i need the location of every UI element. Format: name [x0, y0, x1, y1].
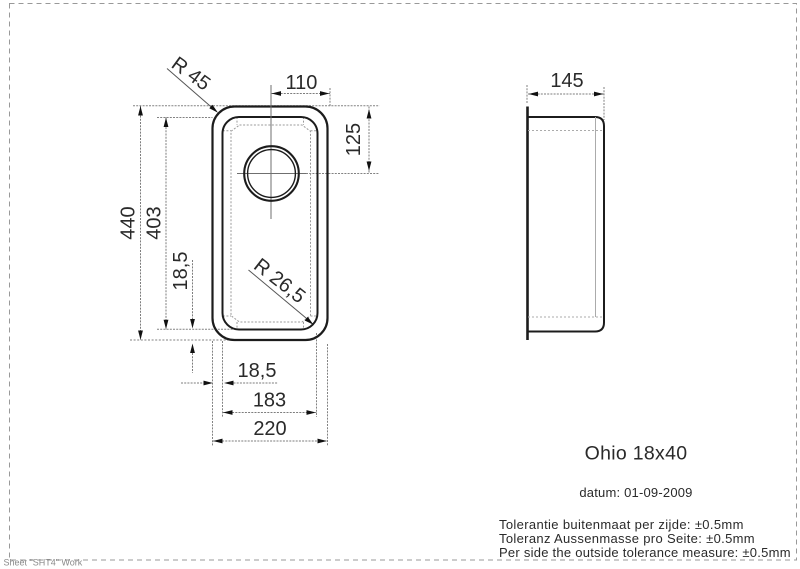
svg-text:18,5: 18,5: [238, 360, 277, 382]
svg-text:Tolerantie buitenmaat per zijd: Tolerantie buitenmaat per zijde: ±0.5mm: [499, 517, 744, 532]
svg-text:Ohio 18x40: Ohio 18x40: [585, 443, 688, 465]
svg-text:125: 125: [343, 123, 365, 156]
svg-text:18,5: 18,5: [170, 252, 192, 291]
svg-text:183: 183: [253, 390, 286, 412]
svg-text:145: 145: [550, 70, 583, 92]
svg-text:Per side the outside tolerance: Per side the outside tolerance measure: …: [499, 545, 791, 560]
svg-text:403: 403: [144, 206, 166, 239]
svg-text:110: 110: [286, 72, 318, 94]
svg-text:Toleranz Aussenmasse pro Seite: Toleranz Aussenmasse pro Seite: ±0.5mm: [499, 531, 755, 546]
svg-text:Sheet "SHT4" Work: Sheet "SHT4" Work: [4, 558, 83, 568]
svg-text:220: 220: [253, 418, 286, 440]
svg-text:440: 440: [118, 206, 140, 239]
svg-text:datum: 01-09-2009: datum: 01-09-2009: [579, 485, 692, 500]
